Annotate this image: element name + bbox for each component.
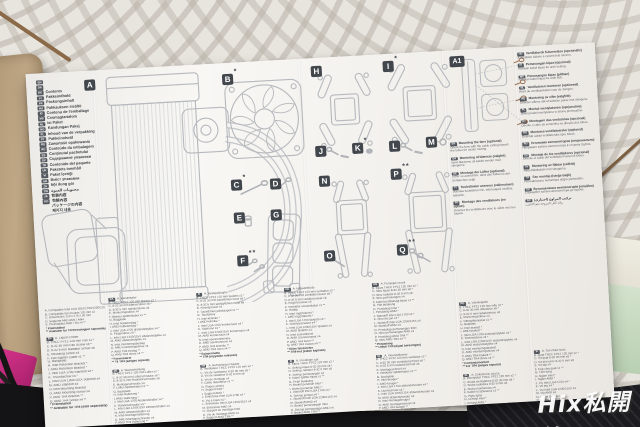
instruction-block-SV: SVMontering av fläktar (valfritt)Rikta f…: [523, 161, 599, 173]
part-label-marks: *: [242, 174, 246, 181]
list-col-4: MSA. Penyejuk cecairB. Kipas THCC FP12 1…: [372, 279, 462, 427]
part-label-chip: P: [390, 168, 402, 180]
wooden-stick-left: [0, 0, 72, 62]
language-tag: ZH: [42, 184, 49, 189]
parts-list-FI: FIA. NestejäähdytinB. THCC FP12 120 mm t…: [196, 288, 282, 359]
part-label-chip: A: [84, 79, 96, 91]
intel-standoff-j-diagram: [326, 144, 353, 160]
instruction-block-TR: TRFan montajı (isteğe bağlı)Fan kablosun…: [524, 173, 600, 185]
instruction-block-DA: DAMontering af blæsere (valgfrit)Vend bl…: [451, 154, 514, 168]
parts-list-DA: DAA. VæskekølerB. THCC FP12 120 mm blæse…: [108, 293, 194, 364]
language-tag: TW: [42, 189, 50, 194]
instruction-block-ID: IDPemasangan kipas (opsional)Arahkan kab…: [518, 60, 594, 72]
part-label-I: I*: [382, 55, 399, 74]
list-col-3: HUA. FolyadékhűtőB. THCC FP12 120 mm ven…: [284, 284, 374, 427]
language-tag: UK: [41, 168, 48, 173]
list-col-0: ENA. Liquid CoolerB. THCC FP12 120 mm Fa…: [46, 334, 112, 417]
instruction-block-PL: PLMontaż wentylatorów (opcjonalnie)Skier…: [520, 105, 596, 117]
instruction-block-PT: PTMontagem das ventoinhas (opcional)Orie…: [521, 116, 597, 128]
instruction-block-UK: UKВстановлення вентиляторів (опційно)Спр…: [525, 184, 601, 196]
part-label-chip: E: [234, 212, 246, 224]
language-tag: TR: [41, 163, 48, 168]
watermark: Hix私開箱: [537, 382, 640, 427]
language-tag: JA: [42, 194, 49, 199]
instructions-mid-column: ENMounting the fans (optional)Orient the…: [450, 139, 516, 220]
part-label-chip: D: [270, 178, 282, 190]
photo-of-manual: ENContentsDAPakkeindholdDEPackungsinhalt…: [0, 0, 640, 427]
instruction-block-ES: ESMontaje de los ventiladores (opcional)…: [523, 150, 599, 162]
part-label-M: M: [425, 131, 437, 150]
part-label-H: H: [310, 61, 322, 80]
intel-bracket-h-diagram: [313, 69, 377, 152]
instruction-body: Orientez les ventilateurs avec le câble …: [454, 206, 516, 216]
part-label-N: N: [318, 170, 330, 189]
part-label-chip: L: [389, 140, 401, 152]
language-tag: RU: [40, 148, 47, 153]
part-label-A1: A1: [449, 50, 465, 69]
language-tag: HU: [37, 106, 44, 111]
part-label-chip: A1: [449, 56, 465, 68]
language-tag: DE: [36, 91, 43, 96]
instruction-block-NL: NLVentilatoren monteren (optioneel)Richt…: [519, 82, 595, 94]
standoff-l-diagram: [400, 140, 427, 156]
part-label-chip: J: [315, 146, 327, 158]
part-label-marks: **: [402, 163, 410, 170]
part-label-marks: **: [249, 250, 257, 257]
list-col-2: FIA. NestejäähdytinB. THCC FP12 120 mm t…: [196, 288, 286, 427]
language-tag: AR: [41, 179, 48, 184]
part-label-L: L: [389, 135, 401, 154]
language-tag: MS: [38, 116, 45, 121]
instruction-body: Vend blæserne så kablet vender mod slang…: [451, 158, 513, 168]
instruction-block-AR: ARتركيب المراوح (اختياري)وجّه كابل المرو…: [525, 195, 601, 207]
part-label-chip: K: [352, 142, 364, 154]
part-label-chip: C: [231, 179, 243, 191]
part-label-B: B*: [222, 68, 239, 87]
instruction-body: Lüfter so ausrichten, dass das Kabel zu …: [452, 172, 514, 182]
part-label-J: J: [315, 141, 327, 160]
language-tag: SV: [40, 158, 47, 163]
part-label-A: A: [84, 74, 96, 93]
part-label-G: G: [270, 204, 282, 223]
instruction-block-HU: HUVentilátorok felszerelése (opcionális)…: [517, 48, 593, 60]
part-label-chip: Q: [397, 244, 409, 256]
backplate-g-diagram: [256, 209, 309, 300]
instruction-block-MS: MSPemasangan kipas (pilihan)Halakan kabe…: [518, 71, 594, 83]
instruction-body: Orient the fans with the cable exiting t…: [450, 143, 512, 153]
instruction-block-DE: DEMontage der Lüfter (optional)Lüfter so…: [452, 169, 515, 183]
language-tag: RO: [39, 142, 46, 147]
part-label-chip: I: [382, 61, 394, 73]
language-tag: VI: [41, 173, 48, 178]
parts-list-MS: MSA. Penyejuk cecairB. Kipas THCC FP12 1…: [372, 279, 458, 350]
instruction-block-FR: FRMontage des ventilateurs (en option)Or…: [453, 198, 516, 216]
part-label-marks: *: [234, 68, 238, 75]
instruction-block-NO: NOMontering av vifte (valgfritt)Orienter…: [520, 94, 596, 106]
language-tag: PL: [39, 132, 46, 137]
language-tag: EN: [36, 80, 43, 85]
part-label-D: D: [269, 173, 281, 192]
part-label-chip: O: [324, 250, 336, 262]
part-label-P: P**: [390, 163, 410, 182]
language-tag: FI: [37, 96, 44, 101]
part-label-chip: G: [270, 209, 282, 221]
language-tag: FR: [37, 101, 44, 106]
part-label-chip: B: [222, 74, 234, 86]
parts-list-NO: NOA. VæskekjølerB. THCC FP12 120 mm vift…: [459, 299, 527, 369]
part-label-chip: F: [237, 255, 249, 267]
parts-list-DE: DEA. WasserkühlungB. THCC FP12 120-mm-Lü…: [112, 365, 198, 427]
part-label-marks: *: [394, 55, 398, 62]
instruction-block-FI: FITuulettimien asennus (valinnainen)Suun…: [452, 183, 515, 197]
part-label-C: C*: [230, 174, 247, 193]
part-label-marks: **: [408, 239, 416, 246]
part-label-chip: M: [426, 136, 438, 148]
instructions-right-column: HUVentilátorok felszerelése (opcionális)…: [517, 48, 602, 210]
language-tag: PT: [39, 137, 46, 142]
language-tag: ID: [38, 111, 45, 116]
parts-list-HU: HUA. FolyadékhűtőB. THCC FP12 120 mm ven…: [284, 284, 370, 355]
part-label-F: F**: [237, 250, 257, 269]
part-label-O: O: [324, 245, 336, 264]
part-label-E: E: [233, 207, 245, 226]
instruction-block-EN: ENMounting the fans (optional)Orient the…: [450, 139, 513, 153]
manual-paper: ENContentsDAPakkeindholdDEPackungsinhalt…: [26, 42, 615, 427]
language-tag: NL: [38, 122, 45, 127]
parts-list-EN: ENA. Liquid CoolerB. THCC FP12 120 mm Fa…: [46, 334, 112, 412]
part-label-chip: N: [319, 175, 331, 187]
part-label-Q: Q**: [396, 239, 416, 258]
language-tag: KO: [43, 199, 50, 204]
nut-m-diagram: [438, 137, 449, 148]
fan-diagram: [222, 75, 307, 171]
list-col-1: DAA. VæskekølerB. THCC FP12 120 mm blæse…: [108, 293, 198, 427]
language-tag: DA: [36, 85, 43, 90]
part-label-marks: *: [364, 137, 368, 144]
language-tag: NO: [39, 127, 46, 132]
part-label-K: K*: [352, 137, 369, 156]
language-tag: ES: [40, 153, 47, 158]
instruction-block-RU: RUУстановка вентиляторов (опционально)На…: [522, 139, 598, 151]
instruction-body: Suuntaa tuulettimet niin, että kaapeli o…: [453, 187, 515, 197]
instruction-block-RO: ROMontarea ventilatoarelor (opțional)Ori…: [522, 127, 598, 139]
part-label-chip: H: [311, 66, 323, 78]
